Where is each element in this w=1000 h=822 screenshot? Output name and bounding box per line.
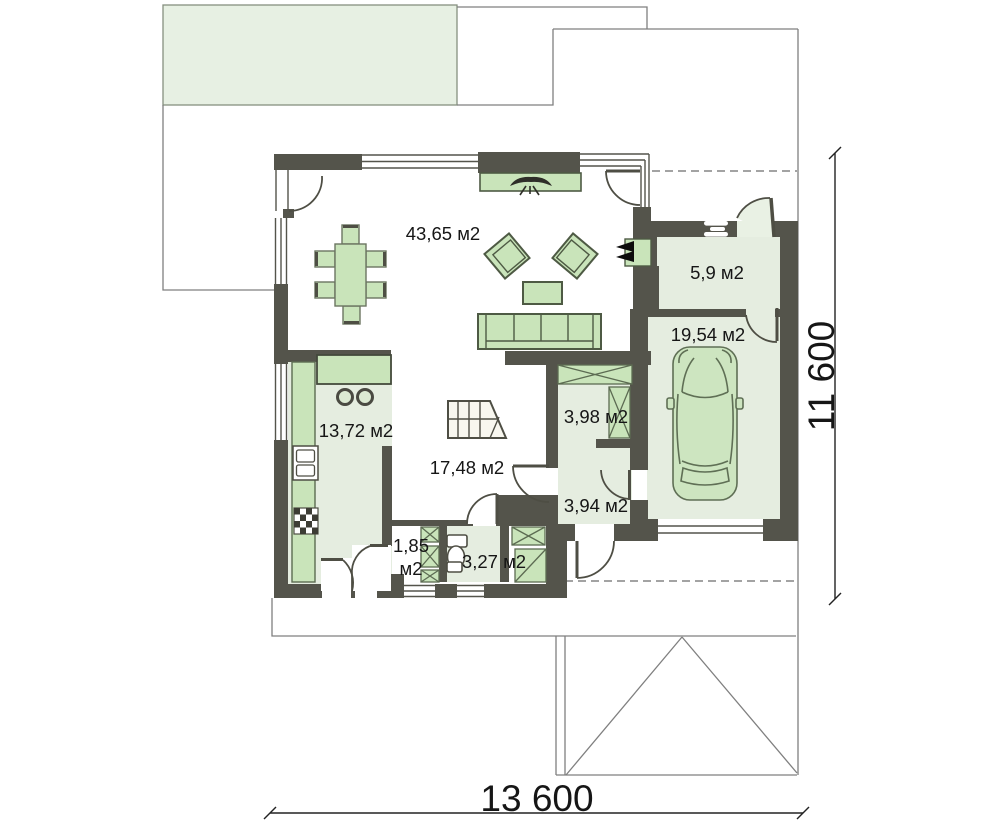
svg-text:43,65 м2: 43,65 м2 <box>406 223 480 244</box>
svg-text:19,54 м2: 19,54 м2 <box>671 324 745 345</box>
svg-text:17,48 м2: 17,48 м2 <box>430 457 504 478</box>
svg-text:3,98 м2: 3,98 м2 <box>564 406 628 427</box>
svg-text:3,27 м2: 3,27 м2 <box>462 551 526 572</box>
svg-text:1,85: 1,85 <box>393 535 429 556</box>
svg-text:13 600: 13 600 <box>480 778 593 819</box>
svg-text:3,94 м2: 3,94 м2 <box>564 495 628 516</box>
svg-text:м2: м2 <box>399 558 422 579</box>
svg-text:13,72 м2: 13,72 м2 <box>319 420 393 441</box>
svg-text:5,9 м2: 5,9 м2 <box>690 262 744 283</box>
svg-text:11 600: 11 600 <box>801 321 842 431</box>
